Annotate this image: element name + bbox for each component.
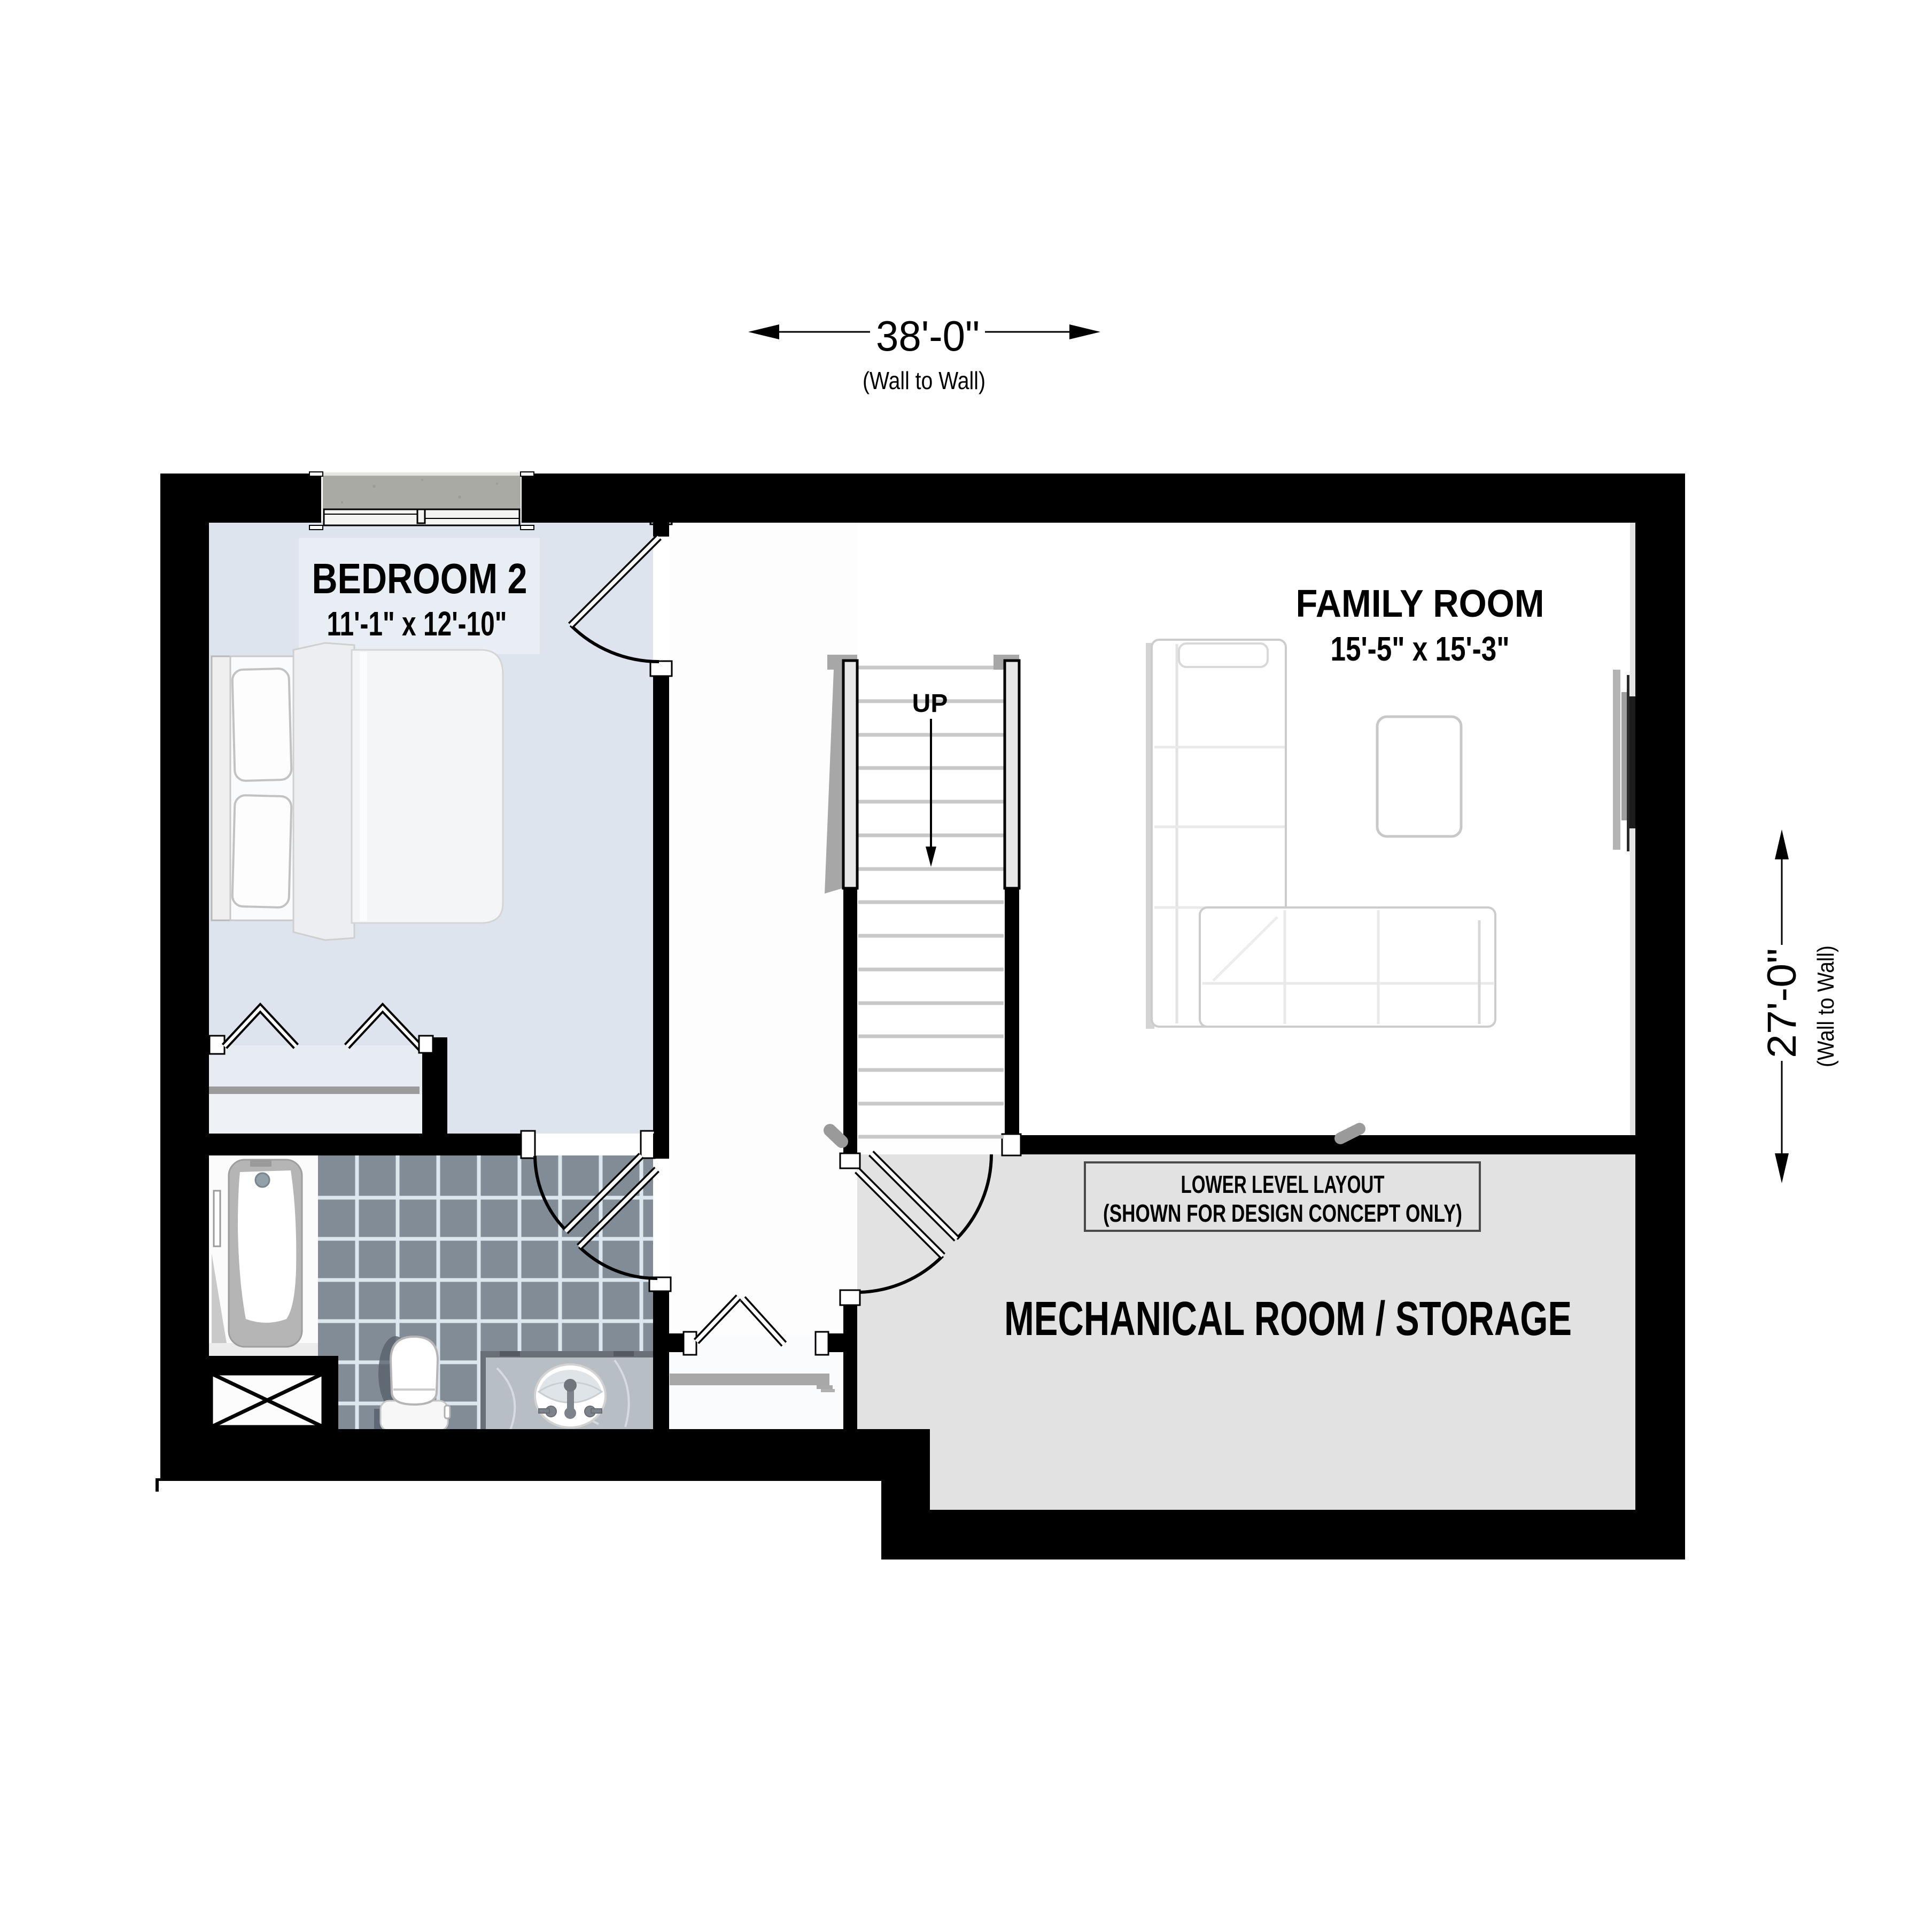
svg-text:(Wall to Wall): (Wall to Wall) — [863, 367, 985, 394]
svg-text:38'-0": 38'-0" — [876, 312, 980, 360]
svg-text:MECHANICAL ROOM / STORAGE: MECHANICAL ROOM / STORAGE — [1004, 1292, 1572, 1346]
svg-text:LOWER LEVEL LAYOUT: LOWER LEVEL LAYOUT — [1181, 1170, 1385, 1198]
svg-text:15'-5" x 15'-3": 15'-5" x 15'-3" — [1331, 630, 1510, 668]
svg-text:FAMILY ROOM: FAMILY ROOM — [1296, 583, 1545, 625]
svg-text:BEDROOM 2: BEDROOM 2 — [312, 555, 527, 602]
svg-text:(Wall to Wall): (Wall to Wall) — [1813, 945, 1839, 1067]
svg-text:11'-1" x 12'-10": 11'-1" x 12'-10" — [327, 604, 507, 643]
svg-text:27'-0": 27'-0" — [1759, 948, 1805, 1058]
svg-text:(SHOWN FOR DESIGN CONCEPT ONLY: (SHOWN FOR DESIGN CONCEPT ONLY) — [1103, 1199, 1462, 1227]
svg-text:UP: UP — [912, 689, 948, 718]
